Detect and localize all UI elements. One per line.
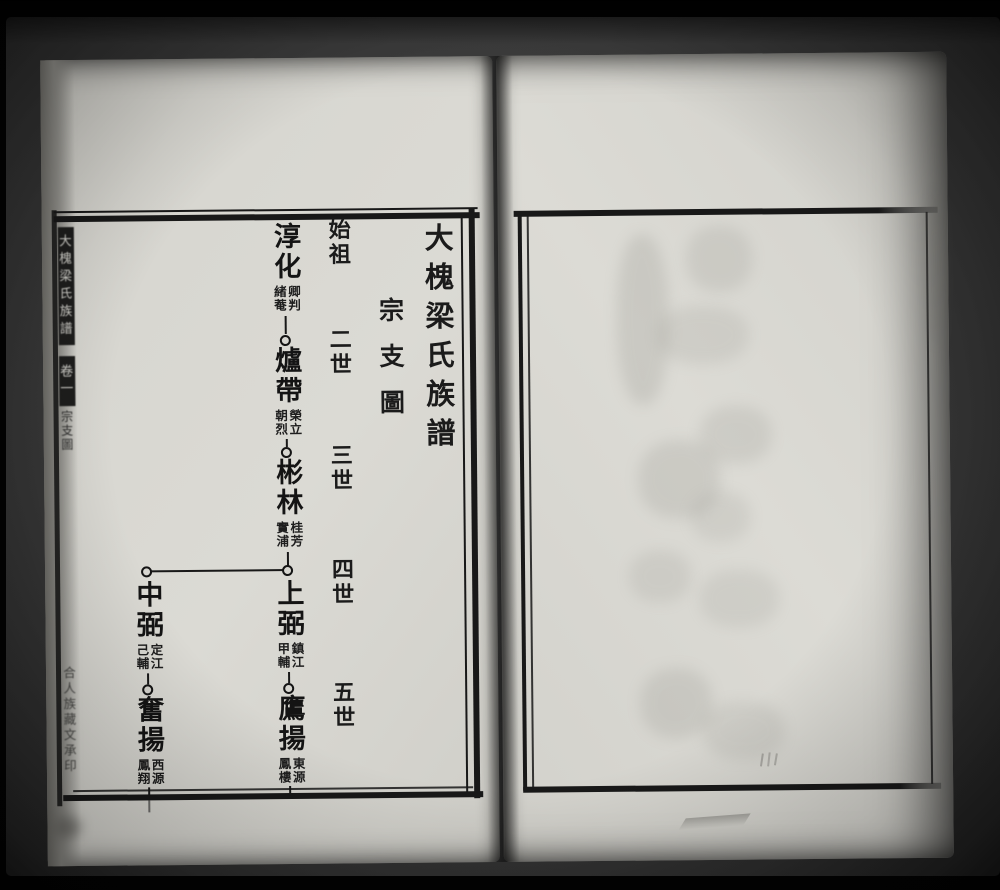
junction-ring [281,447,292,458]
ghost-bleedthrough [657,306,750,365]
frame-left-thick-line [518,213,528,791]
ancestor-notes: 東源 鳳樓 [276,757,304,784]
ancestor-notes: 榮立 朝烈 [273,409,301,436]
connector-line [147,673,149,684]
ancestor-notes: 西源 鳳翔 [135,758,163,785]
tree-node-zhongbi: 中弼 定江 己輔 [115,580,180,671]
connector-line [148,787,150,797]
junction-ring [282,565,293,576]
ancestor-note-right: 桂芳 [288,521,301,548]
ghost-bleedthrough [699,569,780,628]
ancestor-note-left: 鳳翔 [135,758,148,785]
ancestor-note-right: 東源 [290,757,303,784]
frame-left-thin-line [527,216,534,788]
spine-colophon: 合人族藏文承印 [63,666,79,775]
left-page: 大槐梁氏族譜 卷一 宗支圖 合人族藏文承印 大槐梁氏族譜 宗支圖 始祖 二世 三… [40,56,500,866]
ancestor-name: 中弼 [133,580,162,640]
frame-top-thick-line [514,207,938,217]
ancestor-note-left: 己輔 [134,643,147,670]
generation-label-3: 三世 [326,443,353,493]
frame-bottom-thick-line [523,783,941,793]
ancestor-name: 上弼 [274,579,303,639]
stray-mark [774,753,778,765]
junction-ring [142,684,153,695]
generation-label-1: 始祖 [324,217,351,267]
spine-title: 大槐梁氏族譜 [58,227,75,345]
ancestor-note-right: 西源 [149,758,162,785]
tree-node-binlin: 彬林 桂芳 實浦 [255,458,320,549]
frame-bottom-thick-line [63,791,483,801]
junction-ring [283,683,294,694]
generation-label-2: 二世 [325,327,352,377]
tree-node-chunhua: 淳化 卿判 緒菴 [253,222,318,313]
tree-node-fenyang: 奮揚 西源 鳳翔 [116,695,181,786]
ghost-bleedthrough [702,701,785,760]
frame-right-thick-line [469,208,481,798]
stray-mark [760,753,764,766]
connector-line [289,786,291,795]
ancestor-note-left: 緒菴 [272,285,285,312]
ancestor-note-right: 鎮江 [289,642,302,669]
ancestor-note-left: 甲輔 [275,642,288,669]
ghost-bleedthrough [686,226,753,293]
connector-line [286,439,288,447]
ancestor-notes: 卿判 緒菴 [272,285,300,312]
tree-node-yingyang: 鷹揚 東源 鳳樓 [257,694,322,785]
ghost-bleedthrough [690,492,750,543]
ghost-bleedthrough [629,550,691,603]
ancestor-name: 奮揚 [134,695,163,755]
stray-mark [767,752,771,766]
ancestor-name: 爐帶 [272,346,301,406]
spine-section-label: 宗支圖 [61,410,76,452]
book-spread: 大槐梁氏族譜 卷一 宗支圖 合人族藏文承印 大槐梁氏族譜 宗支圖 始祖 二世 三… [40,52,954,867]
ancestor-note-right: 榮立 [287,409,300,436]
ancestor-notes: 鎮江 甲輔 [275,642,303,669]
ghost-edge-text [929,190,942,345]
generation-label-5: 五世 [328,680,355,730]
ancestor-note-right: 卿判 [286,285,299,312]
tree-node-shangbi: 上弼 鎮江 甲輔 [256,579,321,670]
ancestor-name: 鷹揚 [275,694,304,754]
junction-ring [141,566,152,577]
smudge-mark [678,813,750,830]
frame-right-thin-line [461,214,469,792]
right-page [496,52,954,862]
branch-horizontal-line [147,569,289,572]
connector-line [288,672,290,683]
smudge-mark [55,816,81,838]
connector-line-tail [148,800,150,812]
ancestor-note-right: 定江 [148,643,161,670]
tree-node-luodai: 爐帶 榮立 朝烈 [254,346,319,437]
book-title: 大槐梁氏族譜 [419,222,455,456]
connector-line [285,316,287,334]
frame-top-thick-line [54,212,480,222]
ancestor-notes: 桂芳 實浦 [274,521,302,548]
ancestor-notes: 定江 己輔 [134,643,162,670]
scanned-photo: 大槐梁氏族譜 卷一 宗支圖 合人族藏文承印 大槐梁氏族譜 宗支圖 始祖 二世 三… [0,0,1000,890]
ancestor-note-left: 實浦 [274,521,287,548]
ancestor-note-left: 朝烈 [273,409,286,436]
ancestor-note-left: 鳳樓 [276,757,289,784]
bed-top-shadow [0,0,1000,44]
ancestor-name: 彬林 [273,458,302,518]
ancestor-name: 淳化 [271,222,300,282]
generation-label-4: 四世 [327,557,354,607]
section-title: 宗支圖 [373,297,404,435]
spine-volume-label: 卷一 [59,356,75,406]
junction-ring [280,335,291,346]
